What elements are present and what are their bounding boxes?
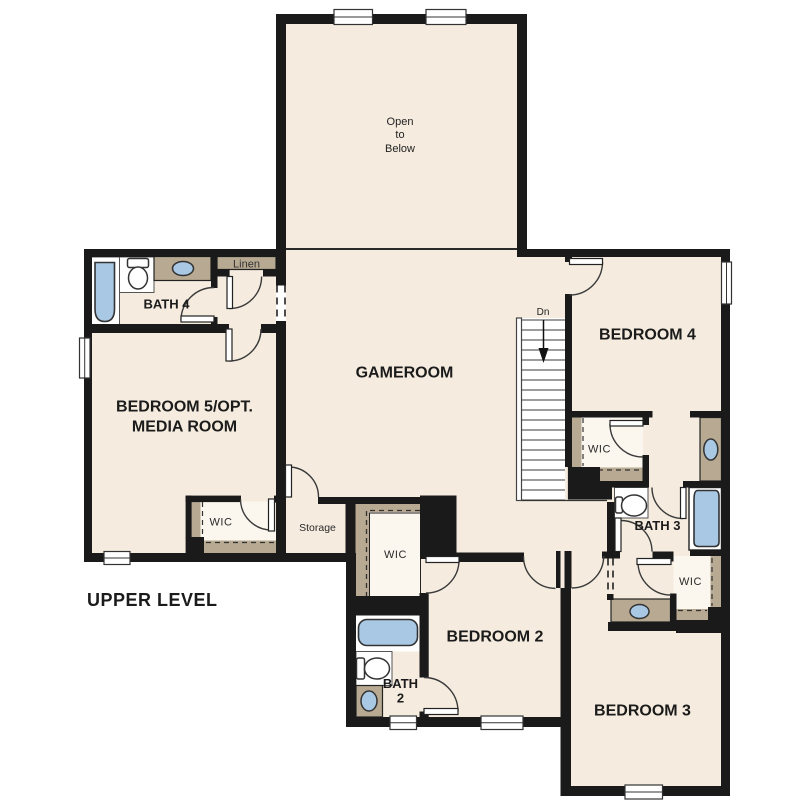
svg-text:UPPER LEVEL: UPPER LEVEL xyxy=(87,590,218,610)
svg-text:WIC: WIC xyxy=(588,444,611,456)
svg-text:WIC: WIC xyxy=(384,549,407,561)
svg-text:BEDROOM 3: BEDROOM 3 xyxy=(594,703,691,720)
svg-text:Storage: Storage xyxy=(299,522,336,534)
svg-text:Below: Below xyxy=(385,143,415,155)
svg-text:WIC: WIC xyxy=(679,576,702,588)
svg-text:BEDROOM 5/OPT.: BEDROOM 5/OPT. xyxy=(116,399,253,416)
svg-text:Dn: Dn xyxy=(537,307,550,318)
svg-text:BATH: BATH xyxy=(383,676,418,691)
svg-text:MEDIA ROOM: MEDIA ROOM xyxy=(132,419,237,436)
svg-text:to: to xyxy=(395,129,404,141)
svg-text:Open: Open xyxy=(387,116,414,128)
svg-text:BEDROOM 4: BEDROOM 4 xyxy=(599,327,696,344)
svg-text:BATH 4: BATH 4 xyxy=(144,297,191,312)
svg-text:2: 2 xyxy=(397,691,404,706)
svg-text:WIC: WIC xyxy=(210,517,233,529)
svg-text:Linen: Linen xyxy=(233,259,260,271)
svg-text:BATH 3: BATH 3 xyxy=(635,518,681,533)
svg-text:GAMEROOM: GAMEROOM xyxy=(356,365,454,382)
svg-text:BEDROOM 2: BEDROOM 2 xyxy=(447,629,544,646)
